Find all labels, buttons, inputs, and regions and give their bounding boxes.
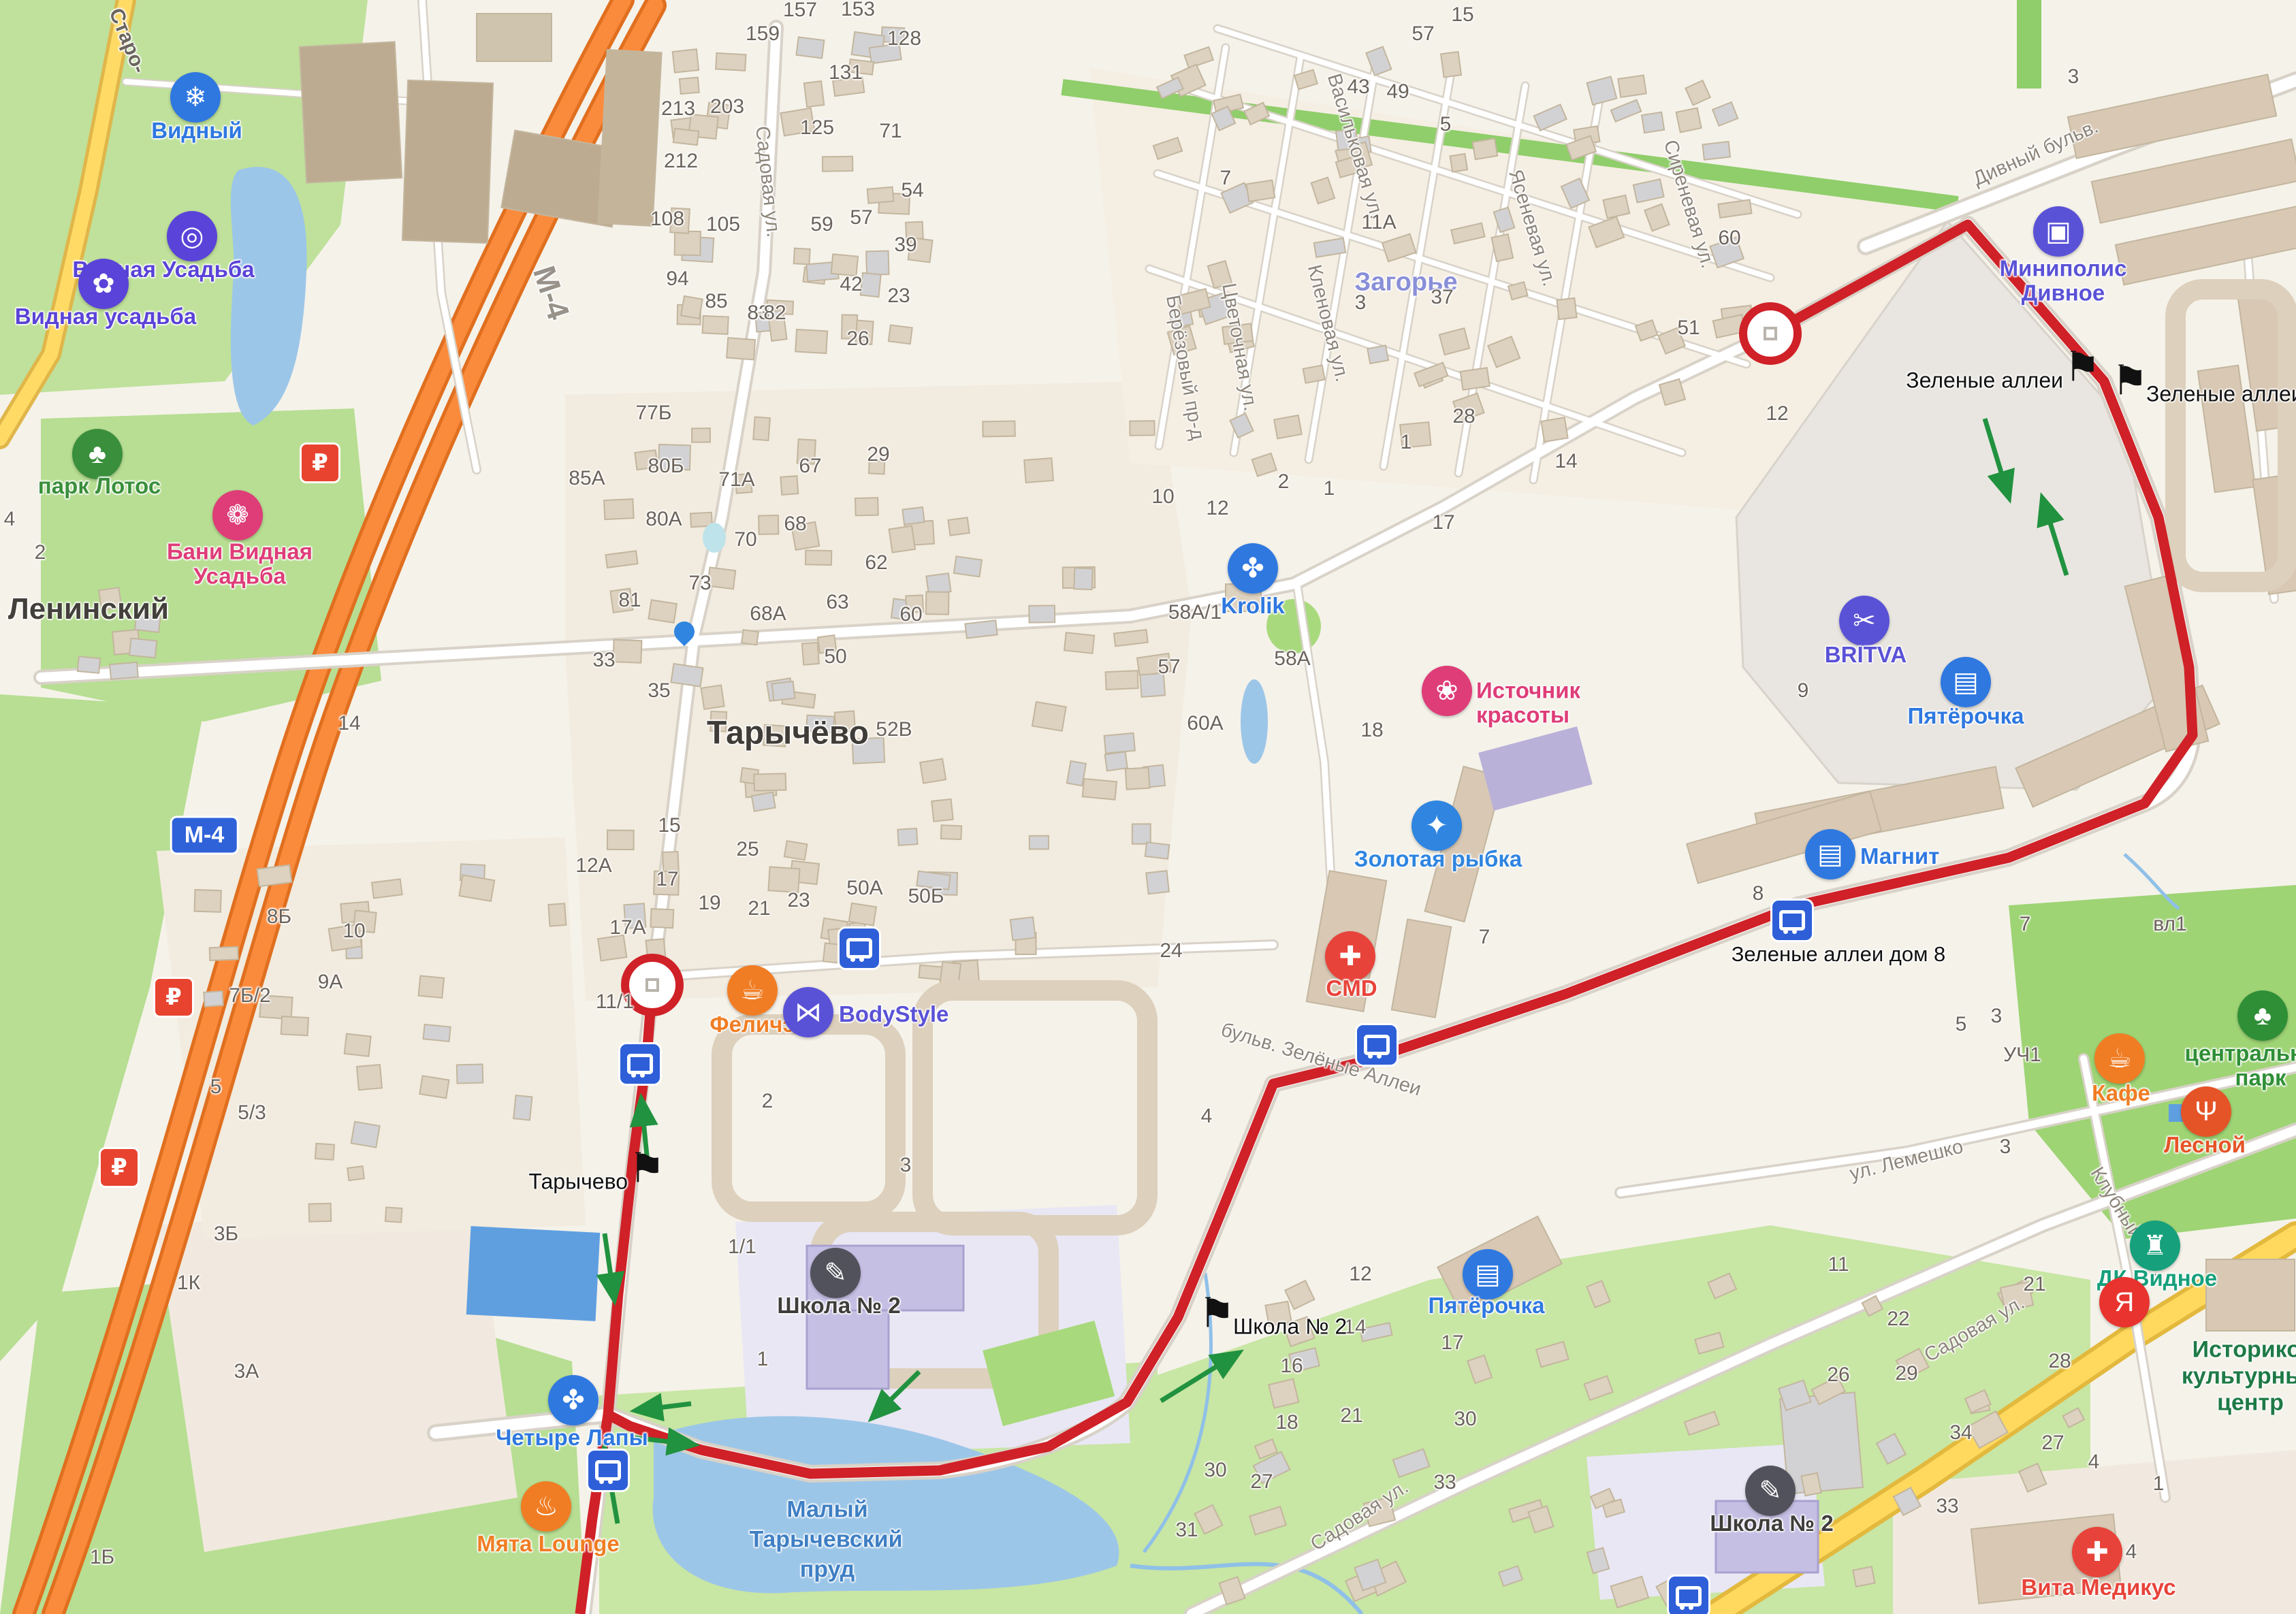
poi-label-pyaterochka-2[interactable]: Пятёрочка <box>1428 1293 1544 1318</box>
building <box>281 1016 308 1035</box>
bus-stop-icon[interactable] <box>1770 899 1814 942</box>
coffee-icon[interactable]: ☕ <box>727 965 778 1016</box>
building <box>796 37 824 58</box>
house-number: 212 <box>664 150 698 173</box>
water-label: Тарычевский <box>749 1527 902 1553</box>
building <box>1441 52 1461 78</box>
yandex-icon[interactable]: Я <box>2099 1277 2150 1327</box>
building <box>889 325 912 344</box>
house-number: 17 <box>656 868 678 891</box>
fitness-icon[interactable]: ⋈ <box>783 987 833 1037</box>
building <box>457 1064 483 1083</box>
building <box>1032 702 1066 731</box>
building <box>780 476 798 495</box>
building <box>513 1095 532 1120</box>
route-stop-label: Зеленые аллеи <box>2146 382 2296 407</box>
building <box>948 517 969 535</box>
place-label-tarychevo-town: Тарычёво <box>707 715 869 752</box>
building <box>867 187 894 204</box>
house-number: 21 <box>2023 1273 2045 1296</box>
house-number: 1 <box>1324 477 1335 500</box>
building <box>1450 154 1468 172</box>
route-stop-label: Зеленые аллеи <box>1906 368 2063 393</box>
house-number: 63 <box>826 591 848 614</box>
house-number: 43 <box>1347 76 1369 99</box>
house-number: 8Б <box>267 905 291 929</box>
building <box>347 1166 364 1180</box>
house-number: 8 <box>1753 882 1764 905</box>
poi-label-krolik[interactable]: Krolik <box>1221 594 1285 618</box>
ice-rink-icon[interactable]: ❄ <box>170 72 221 123</box>
building <box>477 14 552 61</box>
building <box>424 1024 451 1042</box>
building <box>802 643 819 665</box>
building <box>1130 421 1154 436</box>
building <box>257 865 292 887</box>
house-number: 82 <box>763 302 786 325</box>
residence-icon[interactable]: ◎ <box>167 211 217 261</box>
building <box>1269 1379 1298 1408</box>
building <box>2206 1259 2295 1331</box>
building <box>1030 836 1049 850</box>
building <box>707 567 735 589</box>
house-number: 51 <box>1677 317 1700 340</box>
building <box>204 991 223 1007</box>
building <box>210 947 238 961</box>
house-number: 108 <box>650 208 684 231</box>
building <box>548 903 566 926</box>
route-stop-label: Школа № 2 <box>1233 1314 1347 1340</box>
building <box>681 296 703 319</box>
house-number: 1/1 <box>728 1236 756 1259</box>
house-number: 52В <box>876 718 912 741</box>
poi-label-minipolis-divnoe[interactable]: МиниполисДивное <box>2000 256 2127 304</box>
poi-label-bani-vidnaya-usadba[interactable]: Бани ВиднаяУсадьба <box>167 539 313 587</box>
house-number: 203 <box>710 95 744 118</box>
house-number: 80А <box>645 508 682 531</box>
house-number: 18 <box>1275 1411 1298 1434</box>
paw-icon[interactable]: ✤ <box>1228 543 1278 594</box>
house-number: 17 <box>1441 1331 1463 1355</box>
building <box>459 875 494 901</box>
building <box>613 640 641 663</box>
house-number: 23 <box>887 285 910 308</box>
house-number: 39 <box>894 233 916 257</box>
building <box>673 129 699 145</box>
lounge-icon[interactable]: ♨ <box>521 1481 571 1532</box>
house-number: 28 <box>1452 405 1475 428</box>
building <box>372 879 402 898</box>
house-number: 59 <box>810 213 833 236</box>
house-number: 58А <box>1274 647 1310 671</box>
house-number: 68 <box>784 513 806 536</box>
spa-icon[interactable]: ❁ <box>212 490 263 540</box>
house-number: 4 <box>4 508 16 531</box>
house-number: 67 <box>799 455 821 478</box>
house-number: 1 <box>1401 431 1412 454</box>
poi-label-shkola-2-center[interactable]: Школа № 2 <box>777 1293 900 1318</box>
building <box>855 498 878 515</box>
house-number: 4 <box>2126 1540 2137 1564</box>
basket-icon[interactable]: ▤ <box>1463 1249 1513 1300</box>
house-number: 2 <box>35 541 46 564</box>
bus-stop-icon[interactable] <box>1667 1575 1710 1614</box>
house-number: 71А <box>718 468 754 491</box>
building <box>1274 415 1302 438</box>
house-number: 37 <box>1431 286 1453 309</box>
house-number: 57 <box>850 206 872 229</box>
building <box>920 759 946 784</box>
building <box>772 681 795 700</box>
poi-label-park-lotos[interactable]: парк Лотос <box>38 474 161 498</box>
map-base-layer <box>0 0 2296 1614</box>
swim-icon[interactable]: ✦ <box>1412 801 1462 851</box>
building <box>671 664 703 687</box>
house-number: 77Б <box>635 402 671 425</box>
medical-cross-icon[interactable]: ✚ <box>1325 931 1375 982</box>
house-number: 94 <box>666 268 688 291</box>
house-number: 30 <box>1204 1459 1226 1482</box>
building <box>650 909 673 928</box>
building <box>1676 108 1702 133</box>
house-number: 11 <box>1828 1253 1849 1276</box>
building <box>1618 76 1646 97</box>
house-number: 3 <box>1355 291 1367 314</box>
building <box>1067 761 1086 786</box>
tree-icon[interactable]: ♣ <box>72 429 123 479</box>
house-number: 131 <box>829 61 863 84</box>
building <box>1473 139 1498 160</box>
building <box>1104 733 1135 754</box>
building <box>315 1144 334 1160</box>
house-number: 27 <box>2041 1432 2064 1455</box>
building <box>1246 180 1275 201</box>
house-number: 7Б/2 <box>229 984 270 1007</box>
building <box>1106 671 1138 690</box>
tree-icon[interactable]: ♣ <box>2237 990 2288 1041</box>
bus-stop-icon[interactable] <box>586 1449 630 1492</box>
poi-label-cmd[interactable]: CMD <box>1326 976 1377 1001</box>
building <box>1461 368 1490 390</box>
house-number: 71 <box>879 120 902 143</box>
house-number: 7 <box>1220 167 1232 190</box>
building <box>754 773 786 790</box>
building <box>419 1076 449 1098</box>
house-number: 9 <box>1798 679 1809 703</box>
building <box>1702 142 1730 160</box>
house-number: 3 <box>900 1154 912 1177</box>
house-number: 105 <box>706 213 740 236</box>
stop-flag-icon[interactable]: ⚑ <box>2064 343 2101 391</box>
building <box>954 556 982 577</box>
poi-label-centralny-park[interactable]: центральныйпарк <box>2185 1041 2296 1089</box>
house-number: 85А <box>569 467 605 490</box>
house-number: 19 <box>698 892 720 915</box>
house-number: 1Б <box>90 1546 114 1569</box>
stop-flag-icon[interactable]: ⚑ <box>628 1144 665 1192</box>
building <box>309 1204 332 1222</box>
poi-label-chetyre-lapy[interactable]: Четыре Лапы <box>496 1425 648 1450</box>
school-icon[interactable]: ✎ <box>810 1248 861 1298</box>
house-number: 42 <box>840 273 862 296</box>
poi-label-lesnoy[interactable]: Лесной <box>2164 1133 2246 1157</box>
building <box>607 830 634 850</box>
building <box>419 975 444 998</box>
house-number: 10 <box>342 920 365 943</box>
house-number: 4 <box>2088 1451 2100 1474</box>
house-number: 31 <box>1175 1519 1198 1542</box>
water-label: Малый <box>786 1497 867 1523</box>
house-number: 35 <box>648 679 670 703</box>
building <box>804 81 824 107</box>
house-number: 24 <box>1160 939 1182 963</box>
house-number: 54 <box>901 179 923 202</box>
school-icon[interactable]: ✎ <box>1745 1466 1796 1516</box>
building <box>889 526 915 553</box>
house-number: вл1 <box>2153 913 2186 936</box>
house-number: 5 <box>1956 1013 1967 1036</box>
building <box>357 1065 382 1090</box>
building <box>1604 195 1630 219</box>
house-number: 16 <box>1280 1355 1303 1378</box>
building <box>806 550 831 564</box>
building <box>941 825 961 839</box>
building <box>759 515 778 534</box>
building <box>861 273 881 297</box>
poi-label-pyaterochka[interactable]: Пятёрочка <box>1907 704 2024 728</box>
toll-icon: ₽ <box>99 1147 140 1188</box>
house-number: 128 <box>887 27 921 50</box>
house-number: 7 <box>1479 926 1490 949</box>
house-number: 125 <box>800 116 834 140</box>
house-number: 29 <box>1895 1362 1917 1385</box>
poi-label-shkola-2-right[interactable]: Школа № 2 <box>1710 1511 1833 1536</box>
building <box>402 80 493 243</box>
house-number: 57 <box>1412 22 1434 46</box>
building <box>866 251 889 274</box>
building <box>926 592 949 614</box>
house-number: 25 <box>736 838 759 861</box>
building <box>692 428 710 442</box>
house-number: 34 <box>1949 1421 1972 1444</box>
building <box>1010 917 1036 940</box>
bus-stop-icon[interactable] <box>1355 1023 1399 1067</box>
building <box>1541 417 1567 442</box>
building <box>673 49 699 72</box>
house-number: 33 <box>592 649 615 672</box>
building <box>1074 568 1092 590</box>
house-number: 14 <box>338 712 360 735</box>
park-pin-icon[interactable]: ✿ <box>78 259 129 309</box>
building <box>1024 458 1053 483</box>
green-area-label-istoriko: Историко-культурныйцентр <box>2182 1337 2296 1417</box>
stop-flag-icon[interactable]: ⚑ <box>2111 357 2148 404</box>
house-number: 1 <box>757 1348 769 1371</box>
house-number: 30 <box>1454 1408 1476 1431</box>
house-number: 26 <box>1827 1363 1849 1387</box>
house-number: 50Б <box>908 885 944 908</box>
building <box>675 231 701 255</box>
poi-label-feliche[interactable]: Феличэ <box>709 1012 795 1037</box>
house-number: 33 <box>1433 1471 1456 1494</box>
poi-label-vidnaya-usadba-park[interactable]: Видная усадьба <box>15 304 196 329</box>
house-number: 159 <box>746 22 780 46</box>
building <box>701 685 724 709</box>
place-label-leninsky: Ленинский <box>8 592 169 626</box>
stop-flag-icon[interactable]: ⚑ <box>1198 1289 1235 1337</box>
building <box>1105 752 1128 771</box>
poi-label-kafe[interactable]: Кафе <box>2092 1081 2150 1105</box>
house-number: 21 <box>748 897 770 920</box>
building <box>1557 298 1576 319</box>
house-number: 3Б <box>214 1223 238 1246</box>
house-number: 9А <box>318 971 343 994</box>
house-number: 81 <box>618 589 641 612</box>
poi-label-britva[interactable]: BRITVA <box>1825 643 1907 667</box>
house-number: 2 <box>762 1090 774 1113</box>
paw-icon[interactable]: ✤ <box>548 1375 599 1425</box>
building <box>1367 345 1388 364</box>
house-number: 4 <box>1201 1105 1213 1128</box>
building <box>897 828 917 845</box>
house-number: 17А <box>609 916 645 939</box>
house-number: 60 <box>1718 227 1740 250</box>
house-number: 5 <box>210 1076 222 1099</box>
house-number: 3А <box>234 1360 259 1383</box>
building <box>351 1122 380 1148</box>
building <box>300 42 402 182</box>
route-terminal-dot <box>1765 328 1776 339</box>
house-number: 157 <box>783 0 817 22</box>
toll-icon: ₽ <box>153 977 194 1018</box>
building <box>1853 1566 1875 1586</box>
house-number: 5 <box>1440 113 1452 136</box>
medical-cross-icon[interactable]: ✚ <box>2072 1527 2122 1577</box>
building <box>1064 632 1094 653</box>
bus-stop-icon[interactable] <box>838 926 881 970</box>
pond-dot-icon <box>703 523 726 553</box>
house-number: 14 <box>1554 450 1577 473</box>
building <box>794 248 810 265</box>
house-number: 23 <box>787 889 810 912</box>
building <box>345 1034 371 1056</box>
coffee-icon[interactable]: ☕ <box>2094 1033 2145 1084</box>
poi-label-bodystyle[interactable]: BodyStyle <box>839 1002 948 1027</box>
building <box>1801 1473 1821 1496</box>
house-number: 14 <box>1343 1316 1366 1339</box>
house-number: УЧ1 <box>2003 1044 2041 1067</box>
house-number: 50 <box>824 645 846 668</box>
house-number: 85 <box>705 290 727 313</box>
house-number: 21 <box>1340 1404 1362 1427</box>
scissors-icon[interactable]: ✂ <box>1839 596 1890 646</box>
house-number: 50А <box>846 877 882 900</box>
poi-label-myata-lounge[interactable]: Мята Lounge <box>477 1532 620 1556</box>
building <box>742 630 759 645</box>
house-number: 15 <box>1451 3 1473 27</box>
water-label: пруд <box>800 1557 855 1583</box>
culture-house-icon[interactable]: ♜ <box>2130 1221 2180 1271</box>
house-number: 60А <box>1187 712 1223 735</box>
restaurant-icon[interactable]: Ψ <box>2181 1086 2231 1137</box>
building <box>752 792 776 811</box>
building <box>385 1208 402 1223</box>
house-number: 12 <box>1766 402 1788 425</box>
house-number: 12 <box>1349 1263 1371 1286</box>
building <box>931 799 953 822</box>
house-number: 57 <box>1158 656 1180 679</box>
house-number: 12А <box>575 854 611 877</box>
building <box>965 620 997 638</box>
house-number: 28 <box>2048 1350 2071 1373</box>
house-number: 62 <box>865 551 887 575</box>
house-number: 26 <box>846 327 869 351</box>
building <box>680 78 699 94</box>
building <box>1303 366 1325 383</box>
poi-label-istochnik-krasoty[interactable]: Источниккрасоты <box>1476 678 1580 726</box>
poi-label-vita-medikus[interactable]: Вита Медикус <box>2021 1575 2175 1600</box>
building <box>1083 779 1117 800</box>
building <box>849 903 876 926</box>
briefcase-icon[interactable]: ▣ <box>2033 206 2084 257</box>
basket-icon[interactable]: ▤ <box>1805 829 1855 879</box>
house-number: 2 <box>1278 470 1290 494</box>
house-number: 7 <box>2020 913 2031 936</box>
house-number: 1 <box>2153 1472 2165 1496</box>
house-number: 11/1 <box>596 990 634 1014</box>
building <box>1146 871 1169 894</box>
building <box>1029 605 1055 622</box>
poi-label-zolotaya-rybka[interactable]: Золотая рыбка <box>1354 847 1522 871</box>
house-number: 5/3 <box>238 1101 266 1125</box>
building <box>1126 768 1150 790</box>
house-number: 80Б <box>648 455 684 478</box>
basket-icon[interactable]: ▤ <box>1941 657 1991 707</box>
house-number: 3 <box>2068 65 2079 88</box>
house-number: 15 <box>658 814 680 837</box>
building <box>598 50 661 226</box>
route-stop-label: Тарычево <box>528 1169 628 1195</box>
house-number: 10 <box>1151 485 1174 509</box>
building <box>110 662 138 679</box>
house-number: 22 <box>1887 1308 1909 1331</box>
bus-stop-icon[interactable] <box>618 1042 662 1086</box>
building <box>727 338 755 359</box>
house-number: 153 <box>841 0 875 21</box>
house-number: 73 <box>688 572 711 595</box>
building <box>716 53 746 71</box>
house-number: 18 <box>1360 719 1383 742</box>
house-number: 49 <box>1386 80 1409 103</box>
building <box>795 329 827 353</box>
house-number: 213 <box>661 97 695 120</box>
beauty-icon[interactable]: ❀ <box>1422 666 1472 716</box>
building <box>784 841 808 860</box>
poi-label-vidny[interactable]: Видный <box>151 118 242 143</box>
building <box>1132 824 1151 843</box>
building <box>78 656 100 673</box>
house-number: 58А/1 <box>1168 601 1222 624</box>
map-canvas[interactable]: ЛенинскийТарычёвоЗагорьеМ-4Старо-МалыйТа… <box>0 0 2296 1614</box>
house-number: 60 <box>899 603 922 626</box>
house-number: 29 <box>867 443 889 466</box>
toll-icon: ₽ <box>300 442 340 483</box>
building <box>823 157 853 172</box>
house-number: 70 <box>734 528 756 551</box>
poi-label-magnit[interactable]: Магнит <box>1860 844 1939 869</box>
building <box>604 499 634 519</box>
house-number: 17 <box>1432 511 1454 534</box>
